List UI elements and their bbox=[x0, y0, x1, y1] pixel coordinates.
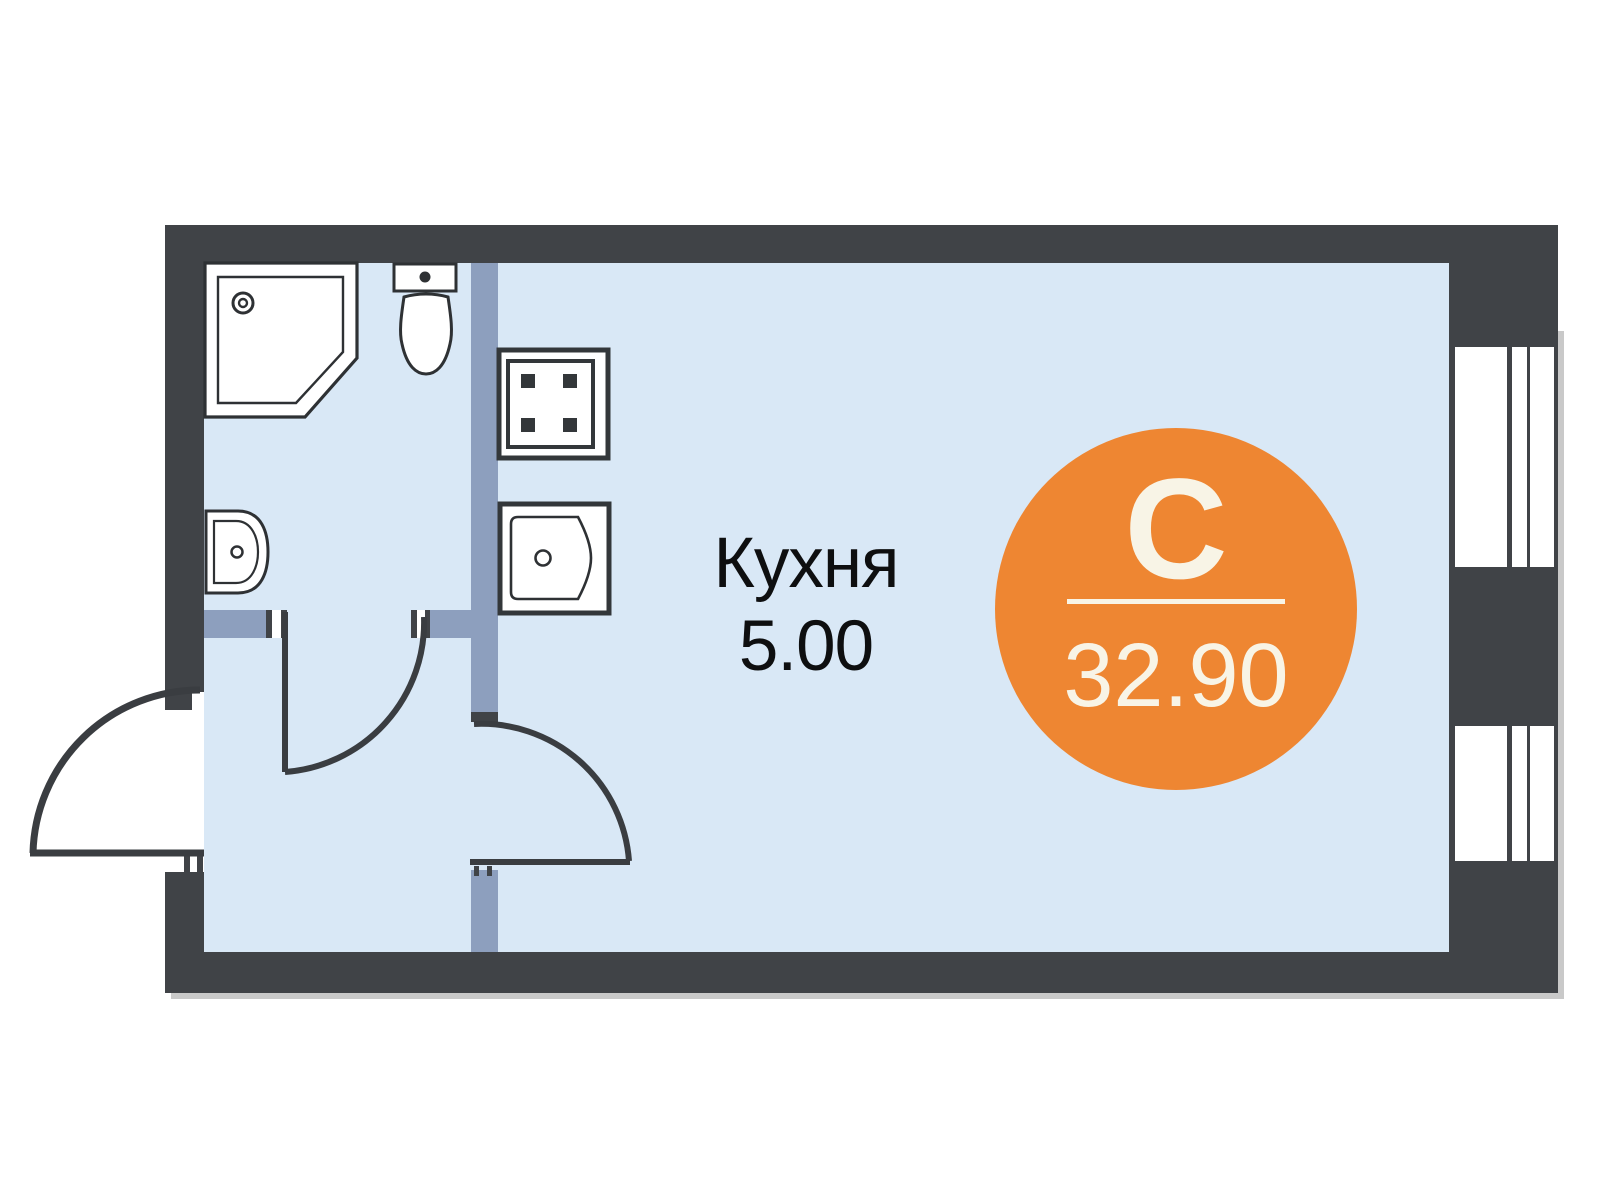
room-area: 5.00 bbox=[616, 605, 996, 688]
window-icon-bottom bbox=[1455, 726, 1554, 861]
room-label: Кухня 5.00 bbox=[616, 522, 996, 688]
kitchen-sink-icon bbox=[500, 504, 609, 613]
washbasin-icon bbox=[206, 511, 268, 593]
stove-icon bbox=[499, 350, 608, 458]
badge-divider bbox=[1067, 599, 1285, 604]
apartment-total-area: 32.90 bbox=[995, 631, 1357, 721]
room-name: Кухня bbox=[616, 522, 996, 605]
apartment-type-badge: С 32.90 bbox=[995, 428, 1357, 790]
window-icon-top bbox=[1455, 347, 1554, 567]
apartment-type-letter: С bbox=[995, 458, 1357, 601]
floorplan-page: Кухня 5.00 С 32.90 bbox=[0, 0, 1600, 1200]
